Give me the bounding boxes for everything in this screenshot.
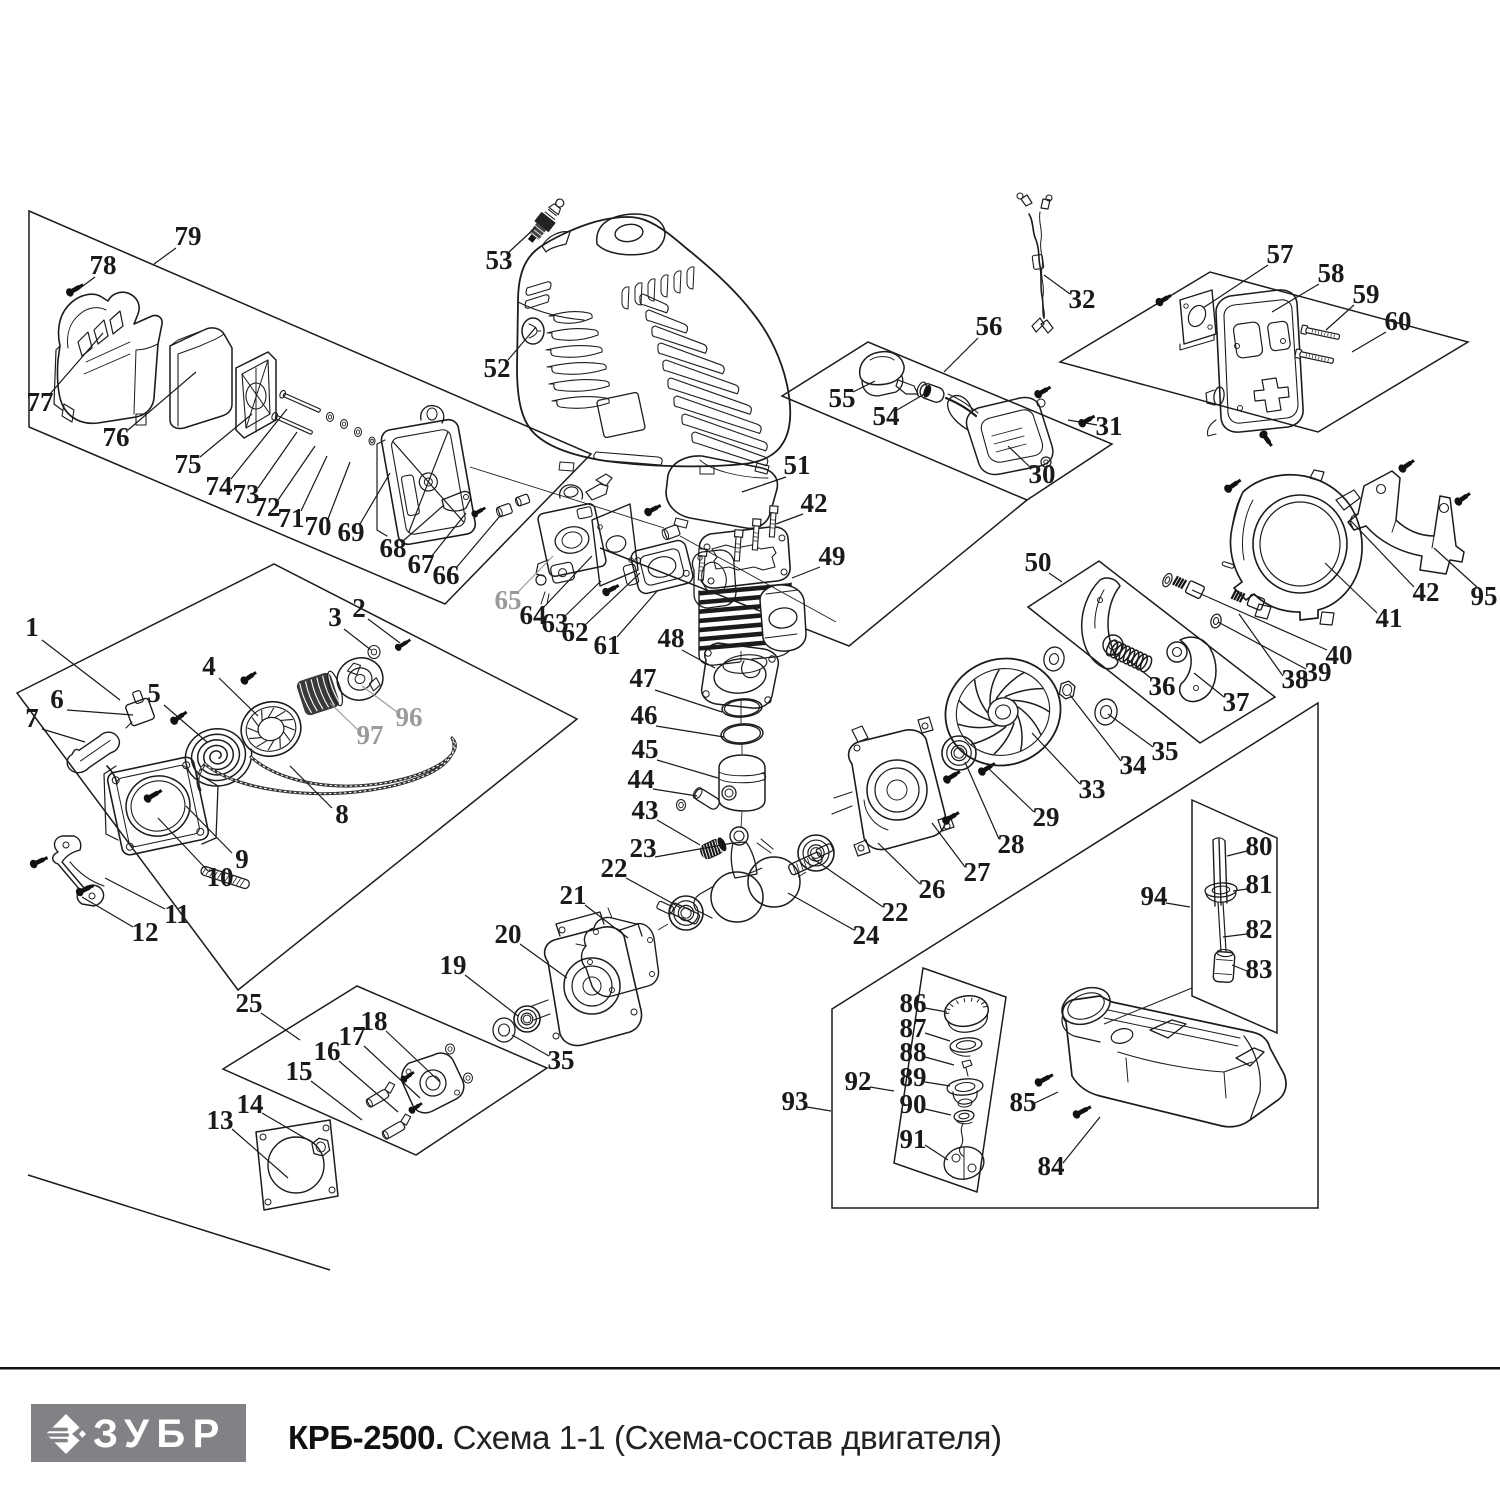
svg-text:71: 71 (278, 503, 305, 533)
svg-text:69: 69 (338, 517, 365, 547)
svg-text:39: 39 (1305, 657, 1332, 687)
svg-text:54: 54 (873, 401, 900, 431)
svg-text:37: 37 (1223, 687, 1250, 717)
svg-text:79: 79 (175, 221, 202, 251)
svg-text:32: 32 (1069, 284, 1096, 314)
svg-text:94: 94 (1141, 881, 1168, 911)
svg-text:45: 45 (632, 734, 659, 764)
svg-text:65: 65 (495, 585, 522, 615)
svg-text:52: 52 (484, 353, 511, 383)
svg-text:26: 26 (919, 874, 946, 904)
svg-text:31: 31 (1096, 411, 1123, 441)
svg-text:59: 59 (1353, 279, 1380, 309)
svg-text:20: 20 (495, 919, 522, 949)
svg-text:22: 22 (601, 853, 628, 883)
svg-text:9: 9 (235, 844, 249, 874)
svg-text:30: 30 (1029, 459, 1056, 489)
svg-text:13: 13 (207, 1105, 234, 1135)
svg-text:82: 82 (1246, 914, 1273, 944)
svg-text:47: 47 (630, 663, 657, 693)
svg-text:44: 44 (628, 764, 655, 794)
svg-text:48: 48 (658, 623, 685, 653)
svg-text:83: 83 (1246, 954, 1273, 984)
svg-text:4: 4 (202, 651, 216, 681)
svg-text:36: 36 (1149, 671, 1176, 701)
svg-text:76: 76 (103, 422, 130, 452)
svg-text:84: 84 (1038, 1151, 1065, 1181)
svg-text:34: 34 (1120, 750, 1147, 780)
svg-text:24: 24 (853, 920, 880, 950)
svg-text:74: 74 (206, 471, 233, 501)
svg-text:42: 42 (1413, 577, 1440, 607)
svg-text:96: 96 (396, 702, 423, 732)
svg-text:49: 49 (819, 541, 846, 571)
svg-text:29: 29 (1033, 802, 1060, 832)
svg-text:68: 68 (380, 533, 407, 563)
svg-text:56: 56 (976, 311, 1003, 341)
svg-text:15: 15 (286, 1056, 313, 1086)
svg-text:ЗУБР: ЗУБР (93, 1412, 227, 1456)
svg-text:6: 6 (50, 684, 64, 714)
svg-text:28: 28 (998, 829, 1025, 859)
svg-text:КРБ-2500. Схема 1-1 (Схема-сос: КРБ-2500. Схема 1-1 (Схема-состав двигат… (288, 1419, 1002, 1456)
svg-text:17: 17 (339, 1021, 366, 1051)
svg-text:8: 8 (335, 799, 349, 829)
svg-text:3: 3 (328, 602, 342, 632)
svg-text:33: 33 (1079, 774, 1106, 804)
svg-text:53: 53 (486, 245, 513, 275)
svg-text:80: 80 (1246, 831, 1273, 861)
svg-text:19: 19 (440, 950, 467, 980)
svg-text:46: 46 (631, 700, 658, 730)
svg-text:41: 41 (1376, 603, 1403, 633)
svg-text:78: 78 (90, 250, 117, 280)
svg-text:50: 50 (1025, 547, 1052, 577)
svg-text:55: 55 (829, 383, 856, 413)
svg-text:62: 62 (562, 617, 589, 647)
svg-text:70: 70 (305, 511, 332, 541)
svg-text:91: 91 (900, 1124, 927, 1154)
svg-text:90: 90 (900, 1089, 927, 1119)
svg-text:61: 61 (594, 630, 621, 660)
svg-text:21: 21 (560, 880, 587, 910)
svg-text:5: 5 (147, 678, 161, 708)
svg-text:12: 12 (132, 917, 159, 947)
svg-text:67: 67 (408, 549, 435, 579)
svg-text:14: 14 (237, 1089, 264, 1119)
svg-text:35: 35 (1152, 736, 1179, 766)
svg-text:23: 23 (630, 833, 657, 863)
svg-text:11: 11 (164, 899, 190, 929)
svg-text:25: 25 (236, 988, 263, 1018)
svg-text:57: 57 (1267, 239, 1294, 269)
svg-text:85: 85 (1010, 1087, 1037, 1117)
svg-text:60: 60 (1385, 306, 1412, 336)
svg-text:2: 2 (352, 593, 366, 623)
svg-text:43: 43 (632, 795, 659, 825)
svg-text:97: 97 (357, 720, 384, 750)
svg-text:16: 16 (314, 1036, 341, 1066)
svg-text:51: 51 (784, 450, 811, 480)
svg-text:77: 77 (27, 387, 54, 417)
svg-text:81: 81 (1246, 869, 1273, 899)
svg-text:22: 22 (882, 897, 909, 927)
svg-text:10: 10 (207, 862, 234, 892)
svg-text:35: 35 (548, 1045, 575, 1075)
svg-text:95: 95 (1471, 581, 1498, 611)
svg-text:38: 38 (1282, 664, 1309, 694)
svg-text:42: 42 (801, 488, 828, 518)
svg-text:66: 66 (433, 560, 460, 590)
svg-text:75: 75 (175, 449, 202, 479)
svg-text:58: 58 (1318, 258, 1345, 288)
svg-text:27: 27 (964, 857, 991, 887)
svg-text:72: 72 (254, 492, 281, 522)
svg-text:89: 89 (900, 1062, 927, 1092)
svg-text:7: 7 (25, 703, 39, 733)
svg-text:93: 93 (782, 1086, 809, 1116)
svg-text:1: 1 (25, 612, 39, 642)
svg-text:92: 92 (845, 1066, 872, 1096)
